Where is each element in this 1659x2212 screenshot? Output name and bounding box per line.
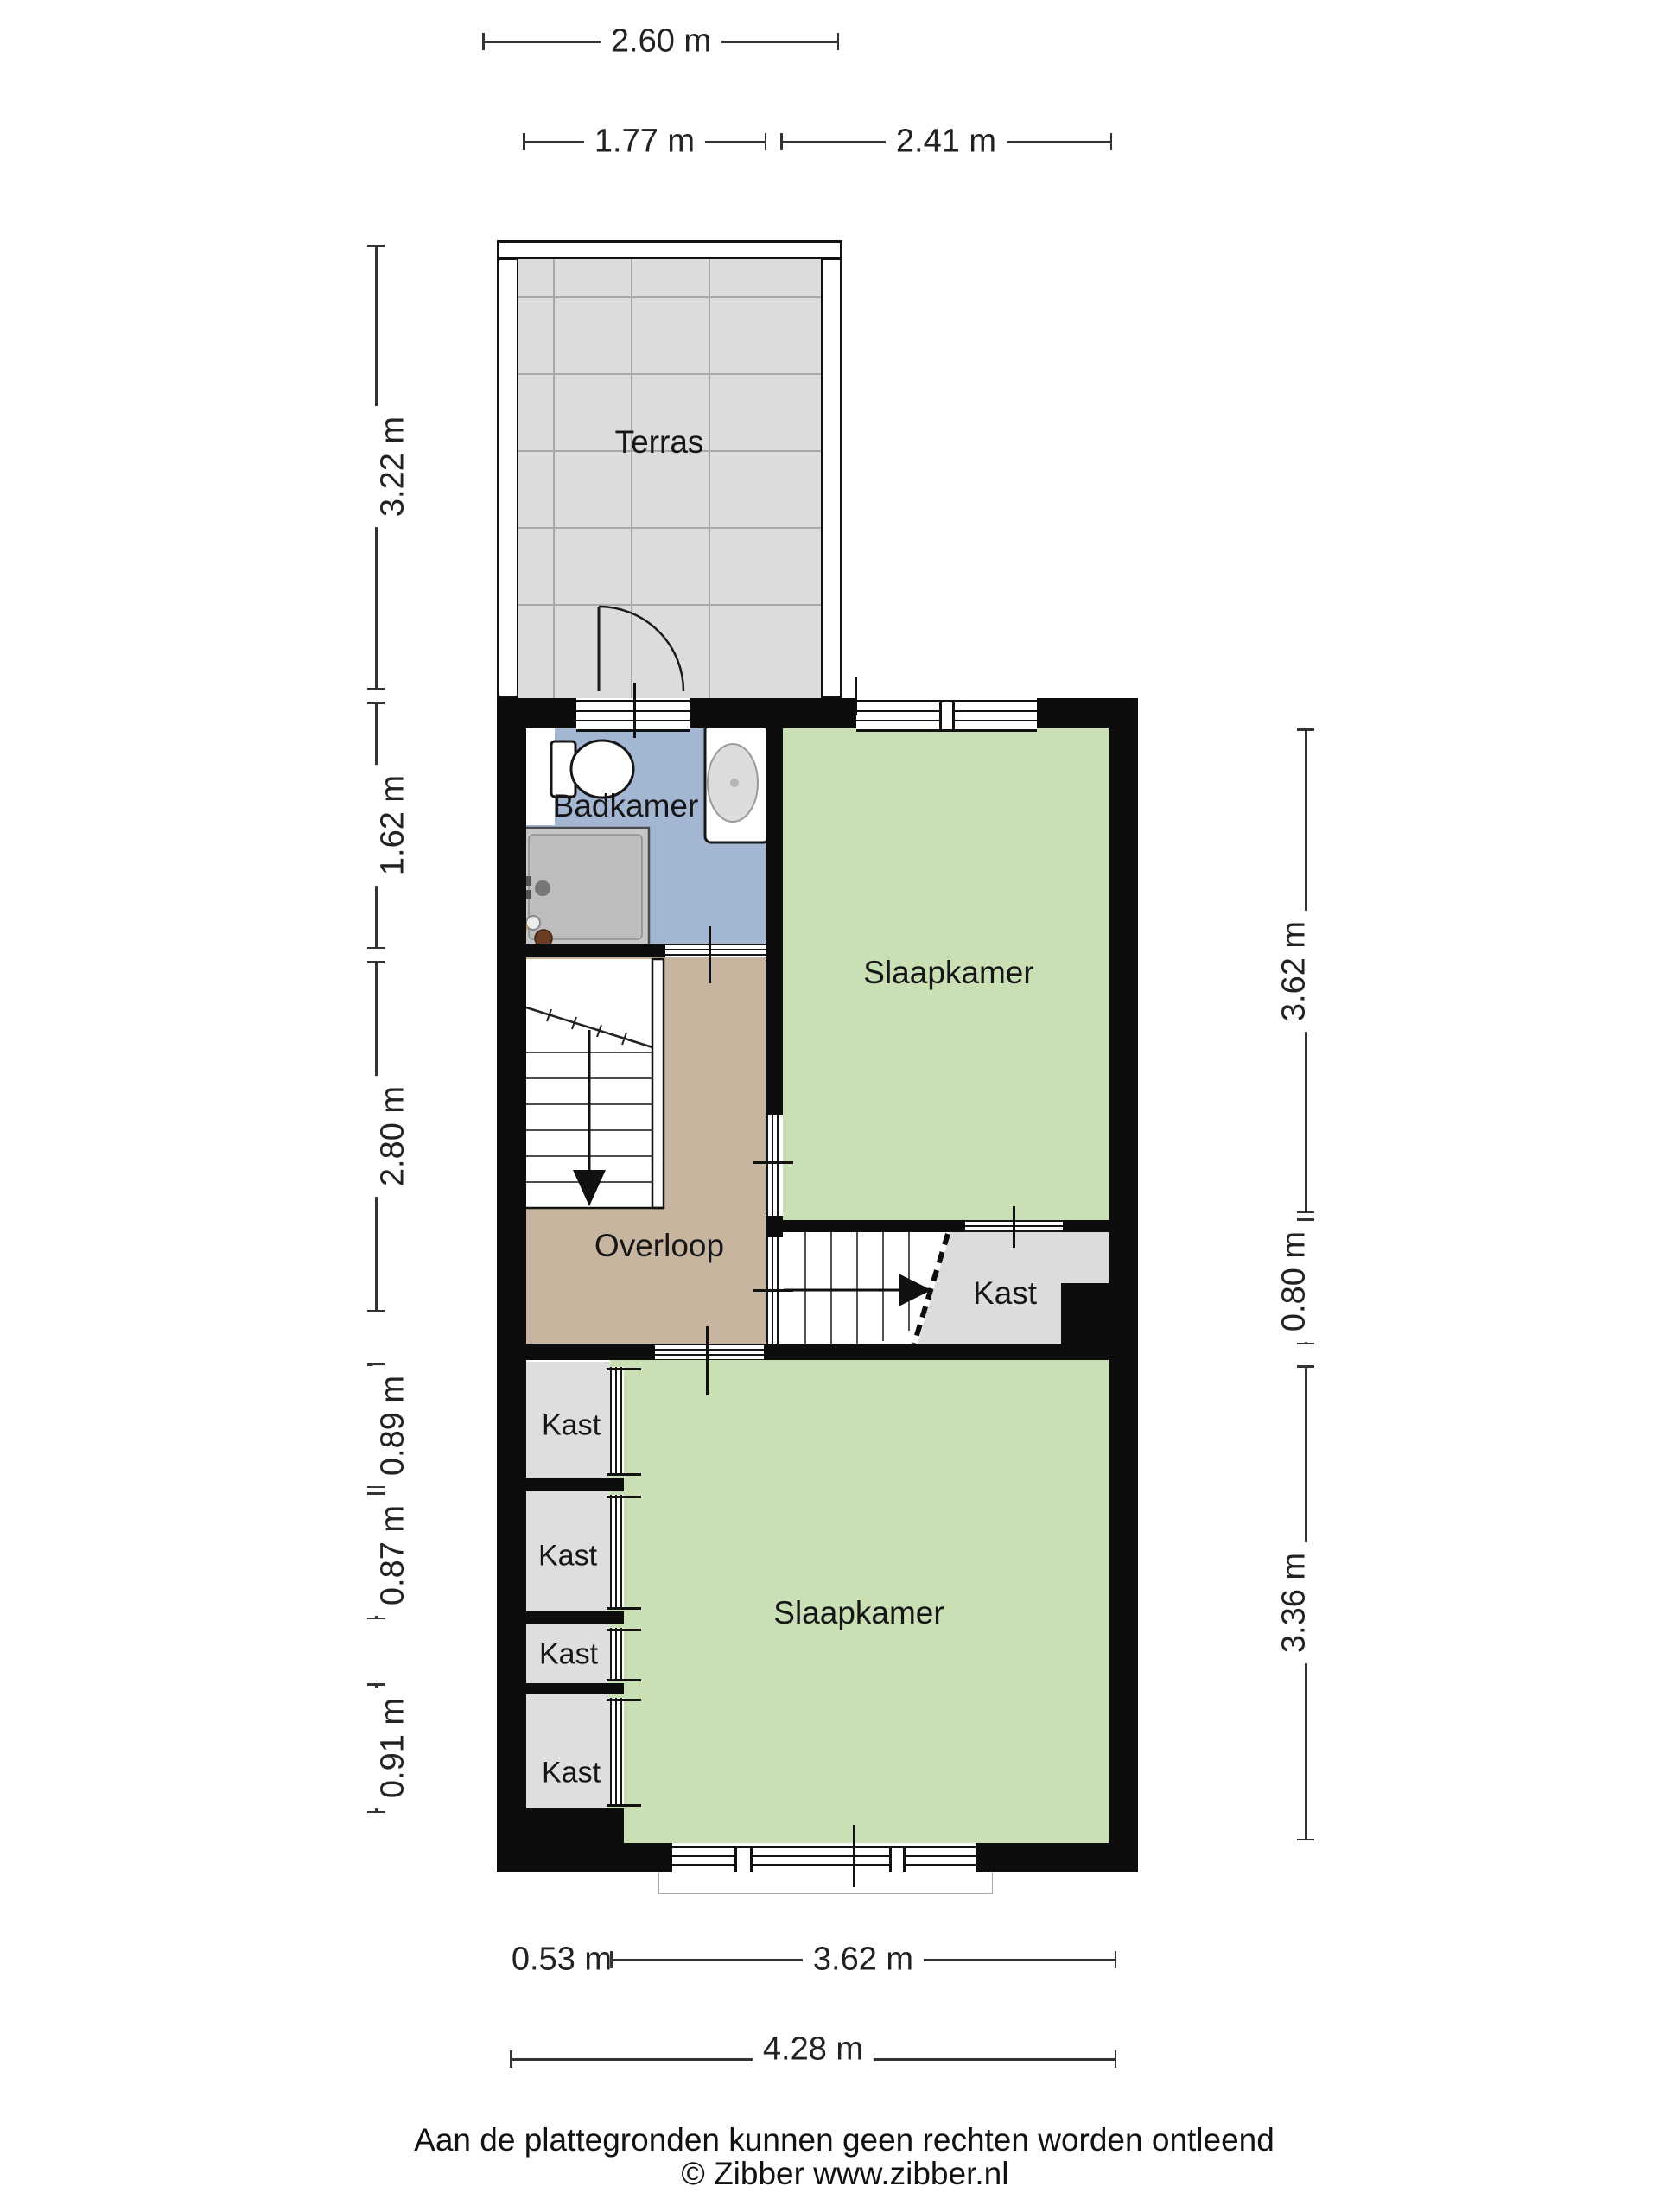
footer-disclaimer: Aan de plattegronden kunnen geen rechten…: [414, 2122, 1274, 2158]
room-label-terras: Terras: [615, 424, 704, 461]
door-tick: [706, 1326, 709, 1395]
room-label-badkamer: Badkamer: [553, 788, 699, 824]
kast-door-tick: [607, 1496, 641, 1498]
wall-top-mid: [690, 698, 856, 728]
door-tick: [753, 1161, 793, 1164]
kast-door-tick: [607, 1473, 641, 1476]
room-label-kast3: Kast: [539, 1638, 598, 1672]
wall-kast3-kast4: [526, 1683, 624, 1694]
dimension-top-total: 2.60 m: [601, 22, 721, 62]
sliding-door-kast2: [610, 1495, 624, 1610]
window-mullion: [889, 1848, 906, 1872]
room-label-kast2: Kast: [538, 1540, 597, 1573]
dimension-right-slaapkamer-boven: 3.62 m: [1274, 911, 1315, 1032]
door-tick: [633, 683, 636, 738]
wall-corner-bottom-left: [497, 1808, 624, 1872]
room-kast4-floor: [526, 1694, 610, 1808]
kast-door-tick: [607, 1607, 641, 1610]
floor-plan: Terras Badkamer Slaapkamer Overloop Kast…: [0, 0, 1659, 2212]
kast-door-tick: [607, 1804, 641, 1807]
dimension-top-left: 1.77 m: [584, 122, 705, 162]
room-label-kast-rechts: Kast: [973, 1275, 1037, 1312]
wall-kast1-kast2: [526, 1478, 624, 1491]
wall-overloop-bottom: [526, 1344, 1109, 1360]
wall-notch-right: [1061, 1283, 1109, 1344]
staircase-kast: [779, 1232, 1109, 1344]
terras-wall-left: [497, 240, 519, 698]
sliding-door-slaapkamer-beneden: [655, 1344, 764, 1360]
kast-door-tick: [607, 1679, 641, 1681]
sliding-door-badkamer: [665, 944, 766, 957]
dimension-left-kast4: 0.91 m: [373, 1688, 414, 1808]
sliding-door-slaapkamer-boven: [766, 1115, 781, 1216]
terras-wall-right: [820, 240, 842, 698]
sliding-door-kast4: [610, 1698, 624, 1807]
room-label-overloop: Overloop: [594, 1228, 724, 1264]
kast-door-tick: [607, 1629, 641, 1631]
window-tick: [853, 1825, 855, 1887]
dimension-right-kast: 0.80 m: [1274, 1221, 1315, 1342]
dimension-bottom-slaapkamer: 3.62 m: [803, 1940, 924, 1980]
sliding-door-kast3: [610, 1628, 624, 1681]
dimension-left-kast1: 0.89 m: [373, 1365, 414, 1486]
badkamer-duct-niche: [526, 728, 555, 825]
room-label-kast4: Kast: [542, 1757, 601, 1790]
terras-railing-top: [497, 240, 842, 260]
room-overloop-floor: [526, 957, 766, 1344]
room-label-slaapkamer-boven: Slaapkamer: [863, 955, 1033, 991]
terras-tile-floor: [518, 259, 821, 698]
dimension-bottom-kast: 0.53 m: [501, 1940, 622, 1980]
dimension-left-terras: 3.22 m: [373, 406, 414, 527]
wall-right: [1109, 698, 1138, 1872]
window-slaapkamer-boven: [856, 700, 1037, 732]
door-tick: [1013, 1206, 1015, 1248]
wall-left: [497, 698, 526, 1872]
dimension-right-slaapkamer-beneden: 3.36 m: [1274, 1542, 1315, 1663]
window-mullion: [939, 702, 955, 729]
wall-under-slaapkamer-boven-right: [1063, 1220, 1109, 1232]
stairs-up-arrow: [899, 1274, 931, 1306]
window-tick: [855, 677, 857, 715]
wall-bottom-right: [976, 1843, 1138, 1872]
window-slaapkamer-beneden: [672, 1846, 976, 1875]
wall-badkamer-bottom: [526, 944, 665, 957]
dimension-left-badkamer: 1.62 m: [373, 765, 414, 886]
wall-badkamer-slaapkamer: [766, 728, 783, 1115]
room-label-kast1: Kast: [542, 1409, 601, 1443]
window-mullion: [734, 1848, 753, 1872]
footer-copyright: © Zibber www.zibber.nl: [682, 2156, 1009, 2192]
dimension-top-right: 2.41 m: [886, 122, 1007, 162]
wall-under-slaapkamer-boven: [778, 1220, 965, 1232]
dimension-bottom-total: 4.28 m: [753, 2030, 874, 2070]
kast-door-tick: [607, 1699, 641, 1701]
dimension-left-kast2: 0.87 m: [373, 1495, 414, 1616]
kast-door-tick: [607, 1368, 641, 1370]
room-badkamer-floor: [526, 728, 766, 944]
dimension-left-overloop: 2.80 m: [373, 1076, 414, 1197]
door-tick: [753, 1289, 793, 1292]
window-sill: [658, 1872, 993, 1894]
wall-kast2-kast3: [526, 1611, 624, 1624]
room-label-slaapkamer-beneden: Slaapkamer: [773, 1595, 944, 1631]
sliding-door-kast1: [610, 1367, 624, 1476]
door-tick: [709, 926, 711, 983]
